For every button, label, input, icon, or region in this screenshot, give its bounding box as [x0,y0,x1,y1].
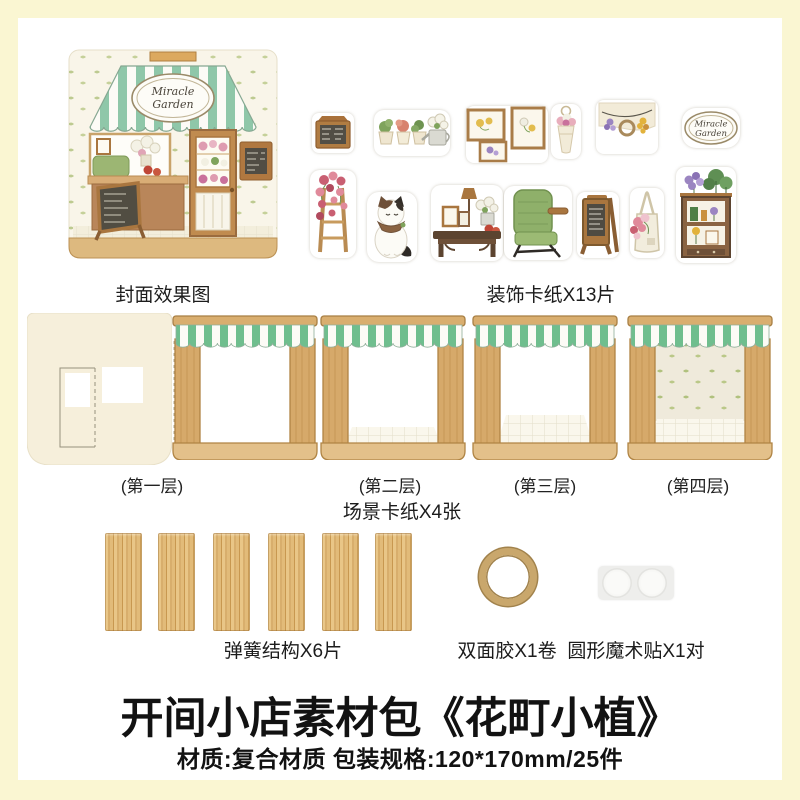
product-title: 开间小店素材包《花町小植》 [0,684,800,746]
layer3-label: (第三层) [514,472,576,497]
layer2-label: (第二层) [359,472,421,497]
cover-shop-illustration: Miracle Garden [64,42,282,266]
scene-backing-card [27,313,172,465]
sticker-armchair-icon [504,186,572,260]
springs-caption: 弹簧结构X6片 [224,636,342,663]
spring-strip-2 [158,533,195,631]
sticker-hanging-garland-icon [596,100,658,154]
scene-frame-layer1 [172,315,318,460]
velcro-dot-2 [637,568,667,598]
sticker-picture-frames-icon [466,106,548,163]
scene-frame-layer4 [627,315,773,460]
scene-frame-layer2 [320,315,466,460]
stickers-caption: 装饰卡纸X13片 [487,280,616,307]
sticker-plant-cabinet-icon [676,167,736,263]
spring-strip-6 [375,533,412,631]
velcro-dot-1 [602,568,632,598]
svg-text:Miracle: Miracle [151,85,195,98]
scene-frame-layer3 [472,315,618,460]
spring-strip-5 [322,533,359,631]
double-sided-tape-roll [479,548,537,606]
sticker-flower-tote-icon [630,188,664,258]
velcro-caption: 圆形魔术贴X1对 [567,636,704,663]
sticker-oval-sign-icon: Miracle Garden [682,108,740,148]
layer1-label: (第一层) [121,472,183,497]
svg-text:Miracle: Miracle [693,120,727,130]
sticker-cat-icon [367,192,417,262]
sticker-chalkboard-sign-icon [312,113,354,153]
product-specs: 材质:复合材质 包装规格:120*170mm/25件 [0,740,800,774]
cover-door [190,130,236,236]
spring-strip-4 [268,533,305,631]
sticker-potted-plants-icon [374,110,450,156]
cover-wall-chalkboard [240,142,272,180]
sticker-side-table-icon [431,185,503,261]
svg-text:Garden: Garden [152,98,193,111]
velcro-backing [598,566,674,600]
cover-shop-sign: Miracle Garden [132,74,214,122]
spring-strip-1 [105,533,142,631]
spring-strip-3 [213,533,250,631]
sticker-flower-ladder-icon [310,170,356,258]
sticker-wrapped-bouquet-icon [551,104,581,159]
door-knob [230,188,234,192]
layer4-label: (第四层) [667,472,729,497]
cover-window [90,134,170,178]
scene-cards-caption: 场景卡纸X4张 [343,497,461,524]
svg-text:Garden: Garden [695,129,727,139]
tape-caption: 双面胶X1卷 [457,636,556,663]
cover-caption: 封面效果图 [115,280,210,307]
sticker-aframe-menu-board-icon [577,192,619,258]
